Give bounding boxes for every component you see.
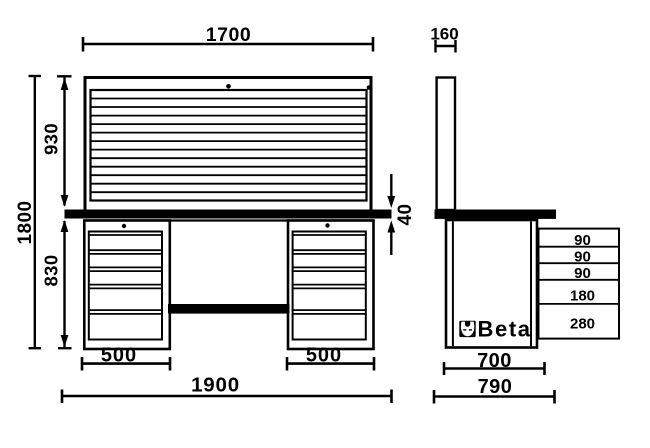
svg-text:930: 930 [41,123,62,155]
svg-text:Beta: Beta [478,317,532,342]
svg-text:830: 830 [41,254,62,286]
svg-text:1900: 1900 [191,374,240,397]
svg-text:790: 790 [478,376,513,398]
svg-text:160: 160 [430,25,458,44]
svg-text:500: 500 [306,345,342,367]
svg-text:1800: 1800 [15,201,36,245]
svg-text:180: 180 [570,288,595,305]
svg-text:40: 40 [395,204,416,226]
svg-text:90: 90 [574,249,591,266]
svg-text:700: 700 [477,350,512,372]
svg-text:1700: 1700 [206,24,251,46]
svg-text:500: 500 [101,345,137,367]
svg-text:90: 90 [574,232,591,249]
svg-text:90: 90 [574,265,591,282]
svg-text:280: 280 [570,316,595,333]
